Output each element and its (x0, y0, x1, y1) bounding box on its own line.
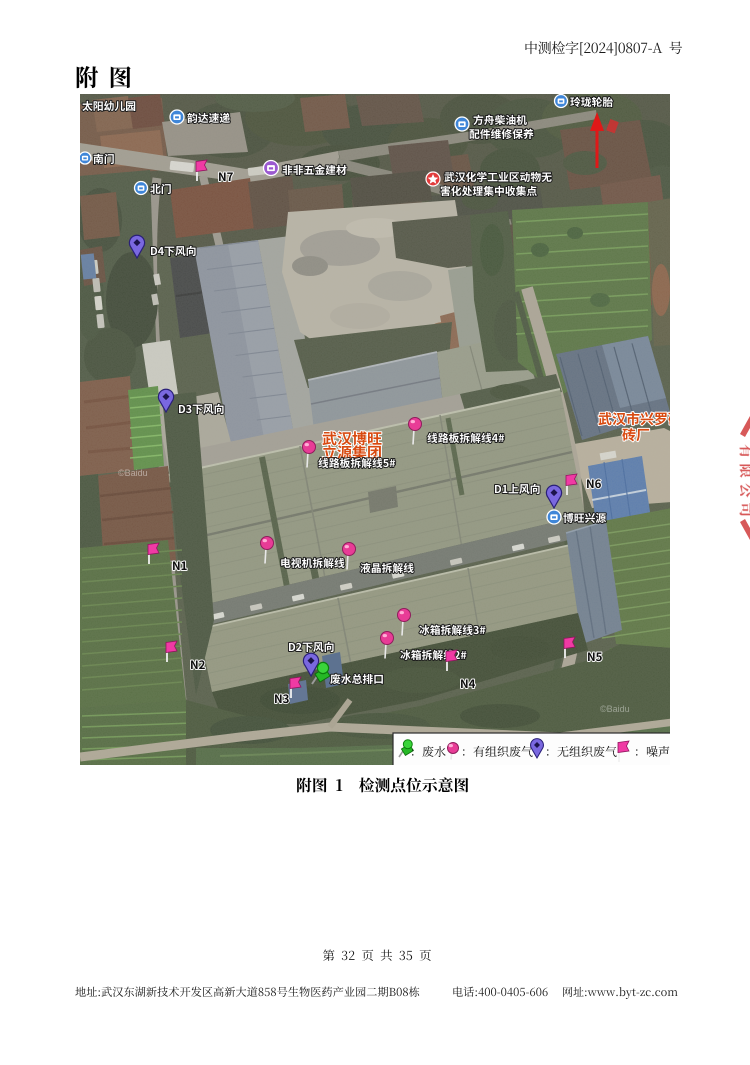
svg-text:©Baidu: ©Baidu (118, 468, 148, 478)
svg-text:©Baidu: ©Baidu (600, 704, 630, 714)
